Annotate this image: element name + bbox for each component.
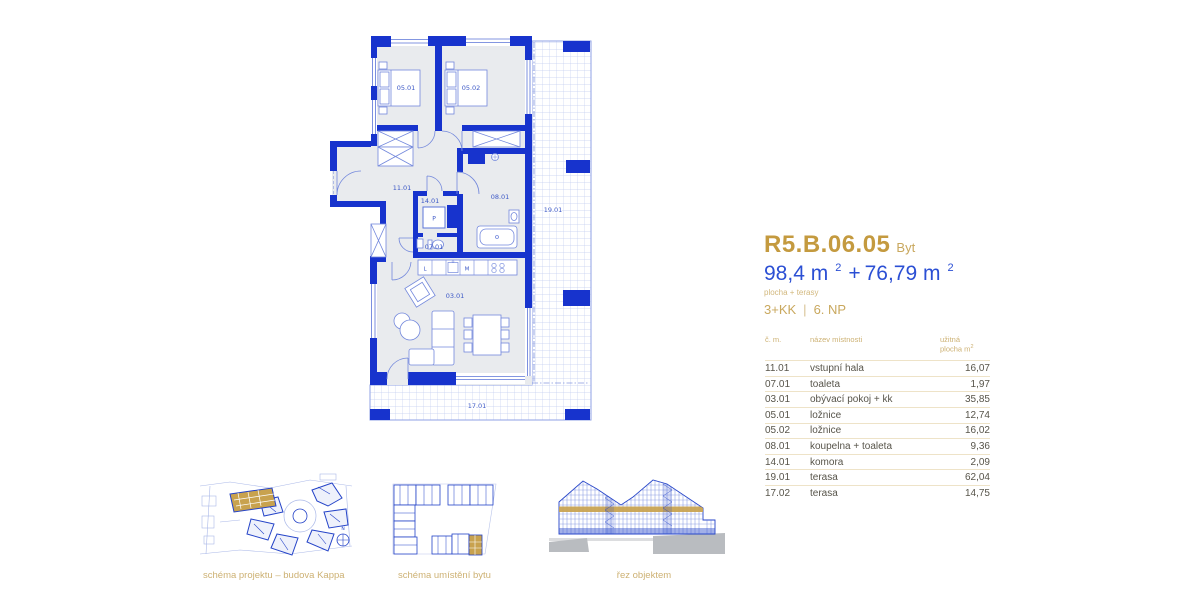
- row-area: 16,07: [940, 363, 990, 374]
- row-number: 05.02: [765, 425, 810, 436]
- unit-location-schematic: [388, 474, 514, 562]
- room-table-header: č. m. název místnosti užitná plocha m2: [765, 335, 990, 360]
- room-label-toilet: 07.01: [425, 243, 444, 251]
- unit-title-block: R5.B.06.05Byt 98,4 m2+76,79 m2 plocha + …: [764, 231, 1024, 317]
- row-number: 05.01: [765, 410, 810, 421]
- dishwasher-label: M: [465, 267, 470, 273]
- row-area: 14,75: [940, 488, 990, 499]
- floor-plan: P L M: [325, 28, 605, 428]
- unit-type: Byt: [896, 240, 915, 255]
- table-row: 14.01 komora 2,09: [765, 454, 990, 470]
- room-label-bedroom2: 05.02: [462, 84, 481, 92]
- table-row: 05.02 ložnice 16,02: [765, 423, 990, 439]
- room-table: č. m. název místnosti užitná plocha m2 1…: [765, 335, 990, 501]
- header-name: název místnosti: [810, 335, 940, 354]
- site-center-plaza: [293, 509, 307, 523]
- unit-location-caption: schéma umístění bytu: [398, 570, 491, 581]
- unit-code-line: R5.B.06.05Byt: [764, 231, 1024, 259]
- layout-divider: |: [803, 302, 806, 317]
- table-row: 03.01 obývací pokoj + kk 35,85: [765, 391, 990, 407]
- header-area-line2: plocha m: [940, 345, 970, 354]
- row-area: 1,97: [940, 379, 990, 390]
- table-row: 05.01 ložnice 12,74: [765, 407, 990, 423]
- table-row: 08.01 koupelna + toaleta 9,36: [765, 438, 990, 454]
- washer-label: P: [432, 216, 436, 223]
- row-number: 11.01: [765, 363, 810, 374]
- washer-box: P: [423, 207, 445, 228]
- row-name: koupelna + toaleta: [810, 441, 940, 452]
- row-name: komora: [810, 457, 940, 468]
- row-number: 19.01: [765, 472, 810, 483]
- room-label-bedroom1: 05.01: [397, 84, 416, 92]
- unit-area-line: 98,4 m2+76,79 m2: [764, 262, 1024, 286]
- row-area: 16,02: [940, 425, 990, 436]
- unit-layout-line: 3+KK|6. NP: [764, 302, 1024, 317]
- section-schematic: [545, 476, 743, 560]
- row-area: 62,04: [940, 472, 990, 483]
- table-row: 07.01 toaleta 1,97: [765, 376, 990, 392]
- row-number: 07.01: [765, 379, 810, 390]
- compass-north-label: N: [341, 526, 344, 532]
- row-name: terasa: [810, 488, 940, 499]
- site-plan-schematic: N: [200, 472, 352, 564]
- apartment-datasheet: P L M: [0, 0, 1200, 600]
- highlighted-unit: [469, 535, 482, 555]
- row-name: ložnice: [810, 410, 940, 421]
- area-terrace-sup: 2: [947, 262, 953, 274]
- area-note: plocha + terasy: [764, 288, 1024, 297]
- compass-icon: N: [337, 526, 349, 546]
- header-area-line1: užitná: [940, 335, 960, 344]
- header-number: č. m.: [765, 335, 810, 354]
- room-label-terrace-right: 19.01: [544, 206, 563, 214]
- room-label-living: 03.01: [446, 292, 465, 300]
- room-label-terrace-bottom: 17.01: [468, 402, 487, 410]
- row-number: 03.01: [765, 394, 810, 405]
- row-number: 08.01: [765, 441, 810, 452]
- section-ground: [549, 533, 725, 554]
- row-area: 35,85: [940, 394, 990, 405]
- area-main: 98,4 m: [764, 262, 828, 285]
- room-label-bathroom: 08.01: [491, 193, 510, 201]
- row-name: toaleta: [810, 379, 940, 390]
- row-name: obývací pokoj + kk: [810, 394, 940, 405]
- row-area: 9,36: [940, 441, 990, 452]
- table-row: 11.01 vstupní hala 16,07: [765, 360, 990, 376]
- row-name: ložnice: [810, 425, 940, 436]
- header-area: užitná plocha m2: [940, 335, 990, 354]
- unit-code: R5.B.06.05: [764, 231, 890, 258]
- table-row: 17.02 terasa 14,75: [765, 485, 990, 501]
- section-floor-highlight: [545, 507, 743, 513]
- table-row: 19.01 terasa 62,04: [765, 469, 990, 485]
- unit-floor: 6. NP: [814, 302, 847, 317]
- row-name: terasa: [810, 472, 940, 483]
- room-label-storage: 14.01: [421, 197, 440, 205]
- row-area: 12,74: [940, 410, 990, 421]
- area-main-sup: 2: [835, 262, 841, 274]
- section-caption: řez objektem: [545, 570, 743, 581]
- unit-layout: 3+KK: [764, 302, 796, 317]
- header-area-sup: 2: [970, 344, 973, 350]
- row-name: vstupní hala: [810, 363, 940, 374]
- row-number: 17.02: [765, 488, 810, 499]
- row-number: 14.01: [765, 457, 810, 468]
- row-area: 2,09: [940, 457, 990, 468]
- room-label-hall: 11.01: [393, 184, 412, 192]
- area-terrace: 76,79 m: [865, 262, 941, 285]
- kitchen-line: L M: [418, 260, 517, 275]
- area-plus: +: [848, 262, 860, 285]
- site-caption: schéma projektu – budova Kappa: [203, 570, 345, 581]
